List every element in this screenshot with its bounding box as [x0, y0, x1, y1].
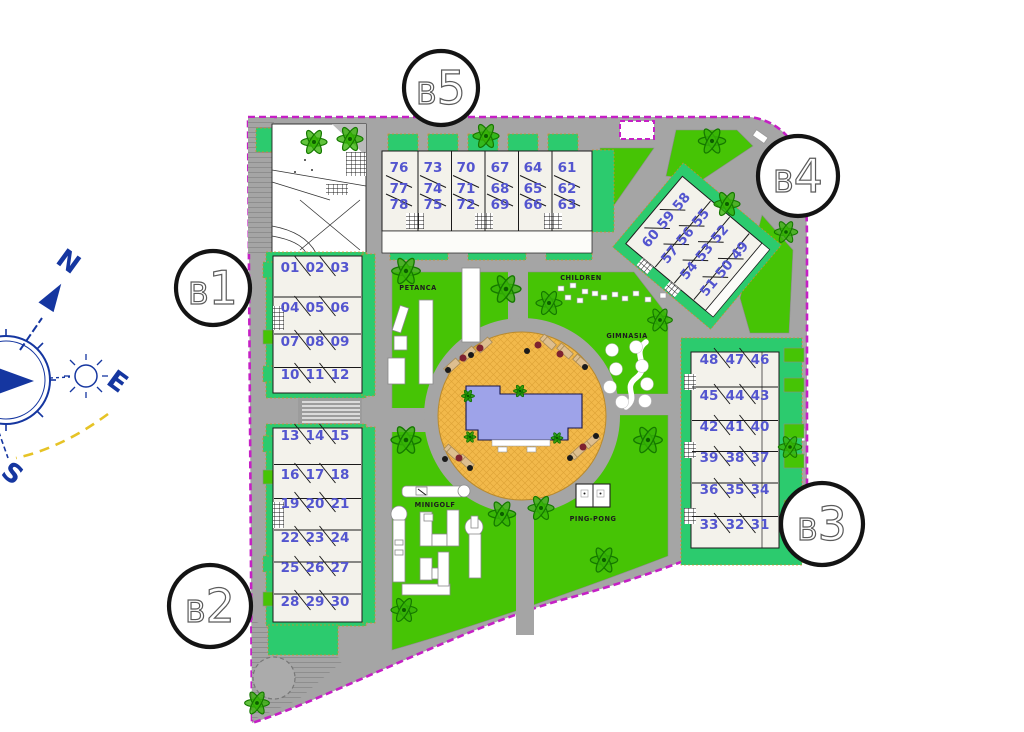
- unit-number: 68: [491, 181, 510, 197]
- unit-number: 26: [306, 560, 325, 576]
- play-equipment-icon: [622, 296, 628, 301]
- b5-terraces: [382, 231, 592, 253]
- unit-number: 72: [457, 197, 476, 213]
- sun-path-arc: [16, 414, 108, 458]
- unit-number: 71: [457, 181, 476, 197]
- petanca-label: PETANCA: [399, 284, 437, 292]
- compass-east-label: E: [101, 365, 133, 400]
- block-badge-b4: B4: [758, 136, 838, 216]
- compass-north-label: N: [50, 243, 85, 280]
- pool-area: [438, 332, 606, 500]
- block-badge-b3: B3: [781, 483, 863, 565]
- unit-number: 73: [424, 160, 443, 176]
- unit-number: 76: [390, 160, 409, 176]
- play-equipment-icon: [558, 286, 564, 291]
- unit-number: 35: [726, 482, 745, 498]
- pool-chair-icon: [593, 433, 599, 439]
- block-badge-b2: B2: [169, 565, 251, 647]
- parasol-icon: [580, 444, 587, 451]
- play-equipment-icon: [570, 283, 576, 288]
- gym-station-icon: [616, 396, 629, 409]
- unit-number: 32: [726, 517, 745, 533]
- parasol-icon: [460, 355, 467, 362]
- unit-number: 61: [558, 160, 577, 176]
- pool-steps: [492, 440, 550, 446]
- b2-building-shell: [273, 428, 362, 622]
- unit-number: 12: [331, 367, 350, 383]
- block-badge-b1: B1: [176, 251, 250, 325]
- play-equipment-icon: [577, 298, 583, 303]
- unit-number: 34: [751, 482, 770, 498]
- unit-number: 01: [281, 260, 300, 276]
- children-label: CHILDREN: [560, 274, 602, 282]
- unit-number: 74: [424, 181, 443, 197]
- gimnasia-label: GIMNASIA: [606, 332, 648, 340]
- play-equipment-icon: [592, 291, 598, 296]
- unit-number: 02: [306, 260, 325, 276]
- building-b2: 131415161718192021222324252627282930: [263, 398, 375, 655]
- unit-number: 37: [751, 450, 770, 466]
- north-arrow-icon: [38, 279, 68, 312]
- unit-number: 41: [726, 419, 745, 435]
- play-equipment-icon: [582, 289, 588, 294]
- building-b1: 010203040506070809101112: [263, 252, 375, 398]
- unit-number: 46: [751, 352, 770, 368]
- unit-number: 04: [281, 300, 300, 316]
- unit-number: 66: [524, 197, 543, 213]
- pool-chair-icon: [567, 455, 573, 461]
- unit-number: 25: [281, 560, 300, 576]
- entrance-gate-marker: [620, 121, 654, 139]
- unit-number: 44: [726, 388, 745, 404]
- unit-number: 39: [700, 450, 719, 466]
- unit-number: 08: [306, 334, 325, 350]
- unit-number: 19: [281, 496, 300, 512]
- gym-station-icon: [639, 395, 652, 408]
- unit-number: 43: [751, 388, 770, 404]
- play-equipment-icon: [660, 293, 666, 298]
- unit-number: 64: [524, 160, 543, 176]
- unit-number: 75: [424, 197, 443, 213]
- unit-number: 77: [390, 181, 409, 197]
- gym-station-icon: [606, 344, 619, 357]
- sun-icon: [64, 354, 108, 398]
- block-badge-b5: B5: [404, 51, 478, 125]
- pool-chair-icon: [442, 456, 448, 462]
- unit-number: 69: [491, 197, 510, 213]
- unit-number: 65: [524, 181, 543, 197]
- play-equipment-icon: [565, 295, 571, 300]
- parasol-icon: [535, 342, 542, 349]
- unit-number: 23: [306, 530, 325, 546]
- unit-number: 10: [281, 367, 300, 383]
- unit-number: 09: [331, 334, 350, 350]
- building-b5: 767370676461777471686562787572696663: [382, 134, 614, 260]
- pool-chair-icon: [445, 367, 451, 373]
- unit-number: 18: [331, 467, 350, 483]
- unit-number: 33: [700, 517, 719, 533]
- turning-circle: [253, 657, 295, 699]
- compass-rose: N E S: [0, 243, 133, 491]
- gym-station-icon: [630, 341, 643, 354]
- pool-chair-icon: [524, 348, 530, 354]
- play-equipment-icon: [612, 292, 618, 297]
- unit-number: 29: [306, 594, 325, 610]
- gym-station-icon: [636, 360, 649, 373]
- unit-number: 05: [306, 300, 325, 316]
- unit-number: 06: [331, 300, 350, 316]
- unit-number: 36: [700, 482, 719, 498]
- gym-station-icon: [604, 381, 617, 394]
- unit-number: 21: [331, 496, 350, 512]
- unit-number: 30: [331, 594, 350, 610]
- swimming-pool: [466, 386, 582, 440]
- site-plan: N E S: [0, 0, 1024, 732]
- play-equipment-icon: [645, 297, 651, 302]
- parasol-icon: [557, 351, 564, 358]
- unit-number: 14: [306, 428, 325, 444]
- site-plan-canvas: N E S: [0, 0, 1024, 732]
- unit-number: 07: [281, 334, 300, 350]
- unit-number: 67: [491, 160, 510, 176]
- pool-chair-icon: [468, 352, 474, 358]
- minigolf-label: MINIGOLF: [415, 501, 456, 509]
- unit-number: 27: [331, 560, 350, 576]
- unit-number: 20: [306, 496, 325, 512]
- unit-number: 28: [281, 594, 300, 610]
- unit-number: 47: [726, 352, 745, 368]
- parasol-icon: [477, 345, 484, 352]
- pool-chair-icon: [467, 465, 473, 471]
- unit-number: 40: [751, 419, 770, 435]
- unit-number: 70: [457, 160, 476, 176]
- unit-number: 45: [700, 388, 719, 404]
- unit-number: 63: [558, 197, 577, 213]
- play-equipment-icon: [633, 291, 639, 296]
- unit-number: 78: [390, 197, 409, 213]
- unit-number: 62: [558, 181, 577, 197]
- unit-number: 42: [700, 419, 719, 435]
- unit-number: 38: [726, 450, 745, 466]
- gym-station-icon: [610, 363, 623, 376]
- unit-number: 24: [331, 530, 350, 546]
- play-equipment-icon: [601, 295, 607, 300]
- compass-south-label: S: [0, 456, 29, 491]
- unit-number: 48: [700, 352, 719, 368]
- unit-number: 13: [281, 428, 300, 444]
- unit-number: 31: [751, 517, 770, 533]
- unit-number: 15: [331, 428, 350, 444]
- gym-station-icon: [641, 378, 654, 391]
- unit-number: 16: [281, 467, 300, 483]
- unit-number: 22: [281, 530, 300, 546]
- pingpong-label: PING-PONG: [570, 515, 617, 523]
- parasol-icon: [456, 455, 463, 462]
- unit-number: 11: [306, 367, 325, 383]
- unit-number: 03: [331, 260, 350, 276]
- unit-number: 17: [306, 467, 325, 483]
- pool-chair-icon: [582, 364, 588, 370]
- pingpong-area: PING-PONG: [570, 484, 617, 523]
